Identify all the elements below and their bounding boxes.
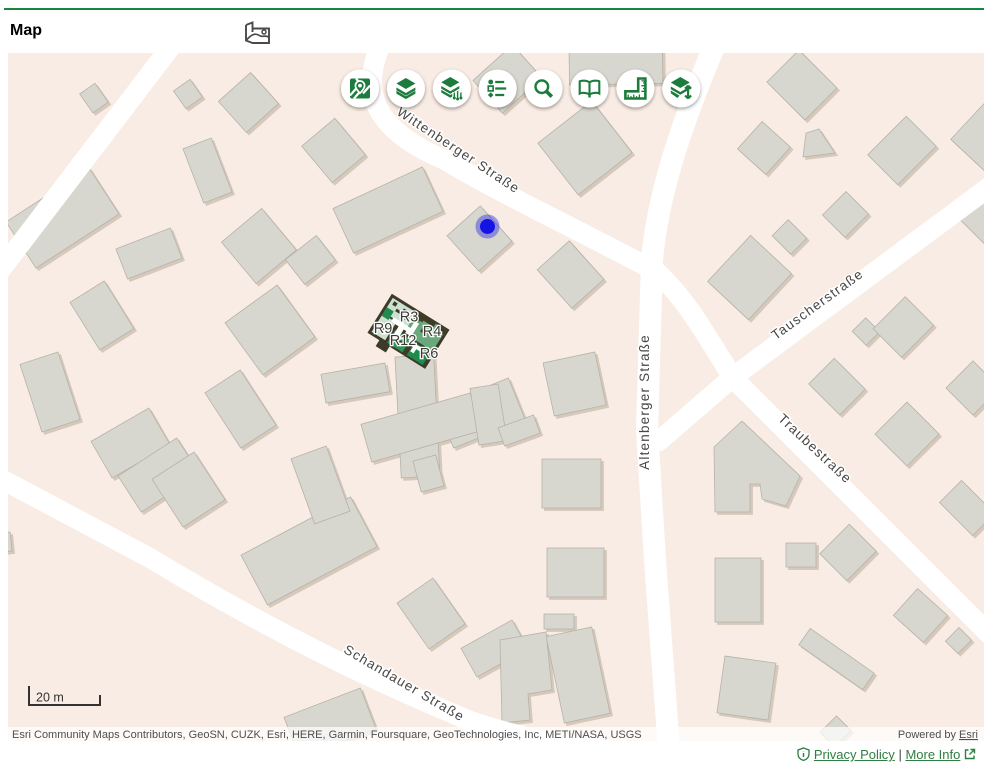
svg-text:Powered by Esri: Powered by Esri: [898, 729, 978, 741]
svg-text:R6: R6: [420, 346, 439, 362]
svg-text:20 m: 20 m: [36, 691, 64, 705]
svg-text:R4: R4: [423, 324, 442, 340]
svg-text:R12: R12: [390, 333, 417, 349]
svg-text:R3: R3: [400, 310, 419, 326]
svg-text:Altenberger Straße: Altenberger Straße: [637, 334, 652, 470]
svg-text:Esri Community Maps Contributo: Esri Community Maps Contributors, GeoSN,…: [12, 729, 642, 741]
